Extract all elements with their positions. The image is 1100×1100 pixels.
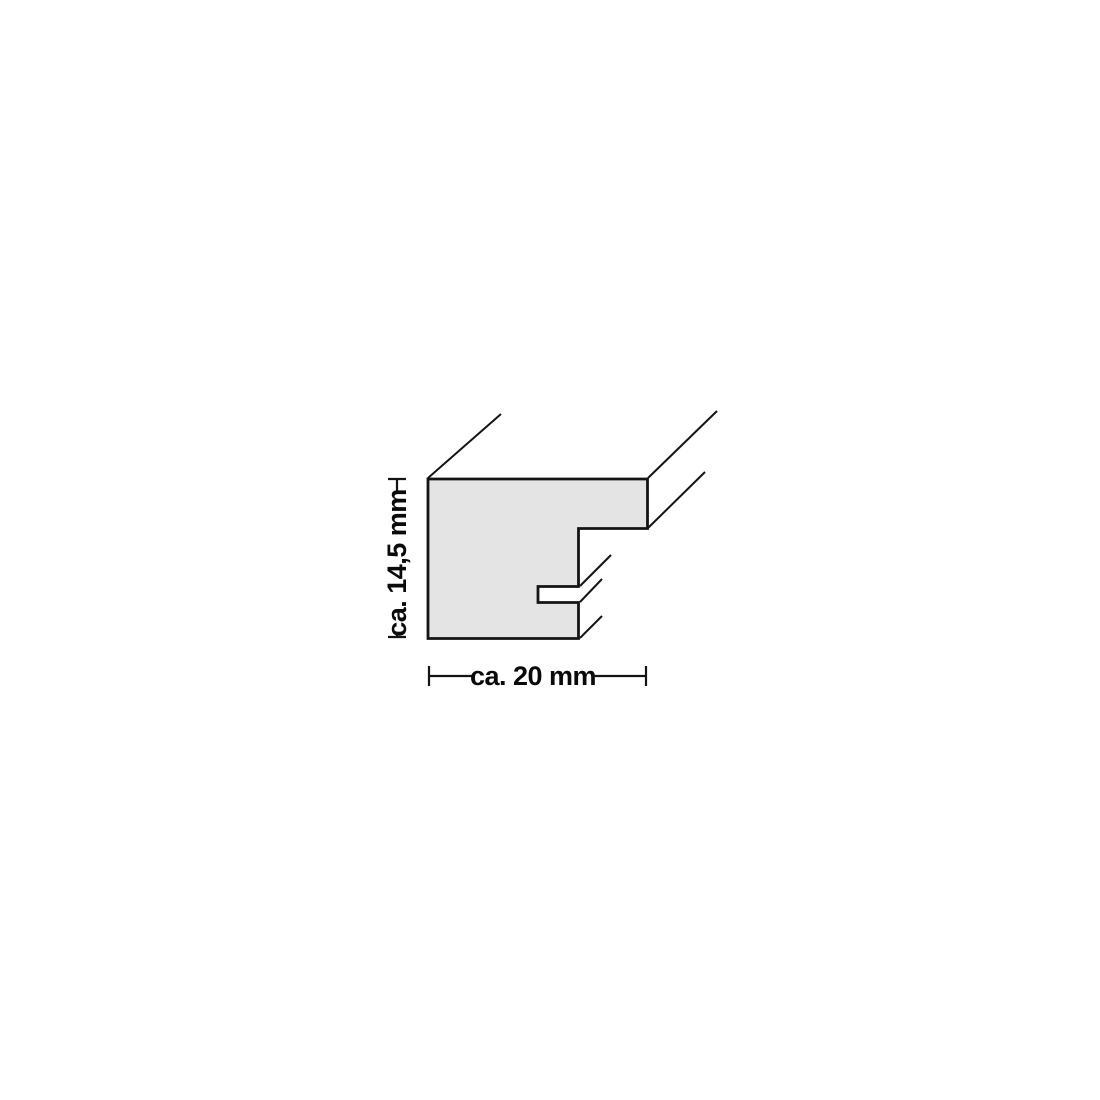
profile-cross-section-shape bbox=[428, 479, 648, 639]
projection-line-slot-top bbox=[580, 555, 611, 586]
diagram-canvas: ca. 14,5 mm ca. 20 mm bbox=[0, 0, 1100, 1100]
projection-line-step-corner bbox=[648, 472, 705, 528]
height-dimension-label: ca. 14,5 mm bbox=[382, 489, 412, 637]
frame-profile-diagram: ca. 14,5 mm ca. 20 mm bbox=[0, 0, 1100, 1100]
width-dimension-label: ca. 20 mm bbox=[470, 661, 596, 691]
projection-line-top-right bbox=[648, 411, 717, 478]
projection-line-top-left bbox=[428, 414, 501, 478]
width-dimension: ca. 20 mm bbox=[429, 661, 646, 691]
height-dimension: ca. 14,5 mm bbox=[382, 479, 412, 637]
projection-line-bottom-right bbox=[580, 616, 602, 638]
